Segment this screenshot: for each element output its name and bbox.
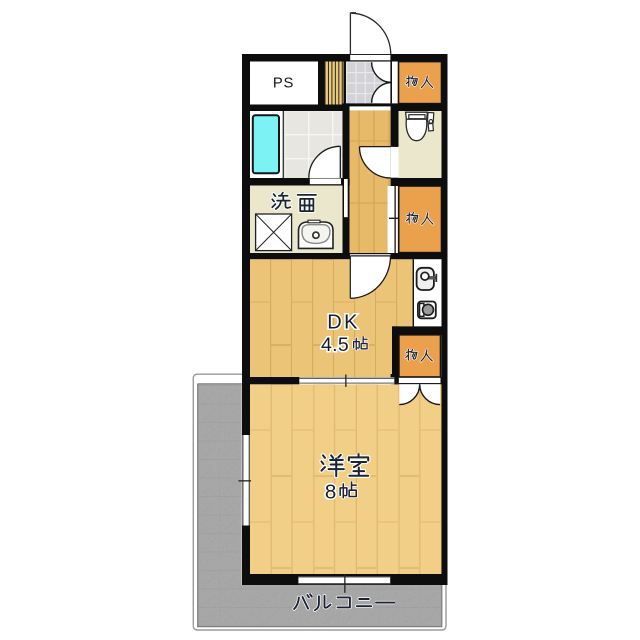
svg-text:8: 8 <box>325 481 336 504</box>
svg-text:PS: PS <box>273 76 294 92</box>
svg-text:4.5: 4.5 <box>321 334 349 356</box>
svg-text:DK: DK <box>327 312 360 334</box>
